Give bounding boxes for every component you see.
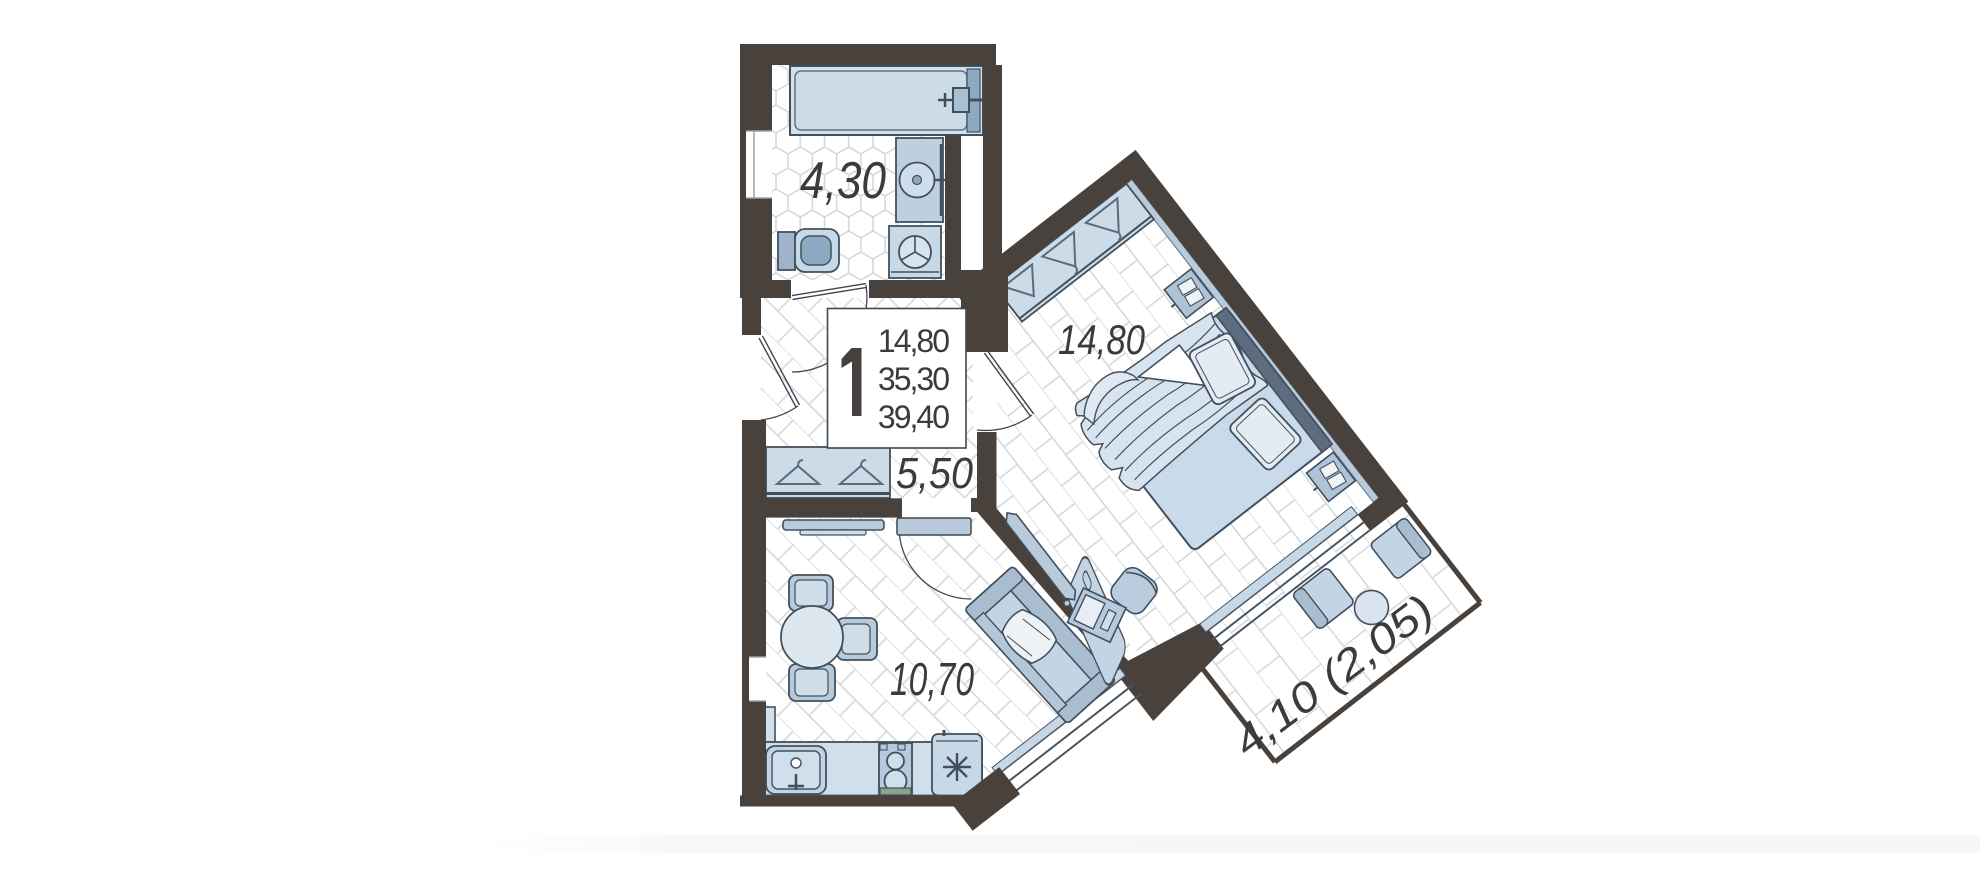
svg-text:14,80: 14,80 [878,323,949,359]
svg-text:5,50: 5,50 [896,449,973,498]
svg-text:14,80: 14,80 [1058,316,1146,363]
svg-text:39,40: 39,40 [878,399,949,435]
svg-text:35,30: 35,30 [878,361,949,397]
svg-text:4,30: 4,30 [800,152,886,210]
svg-text:10,70: 10,70 [890,653,974,705]
